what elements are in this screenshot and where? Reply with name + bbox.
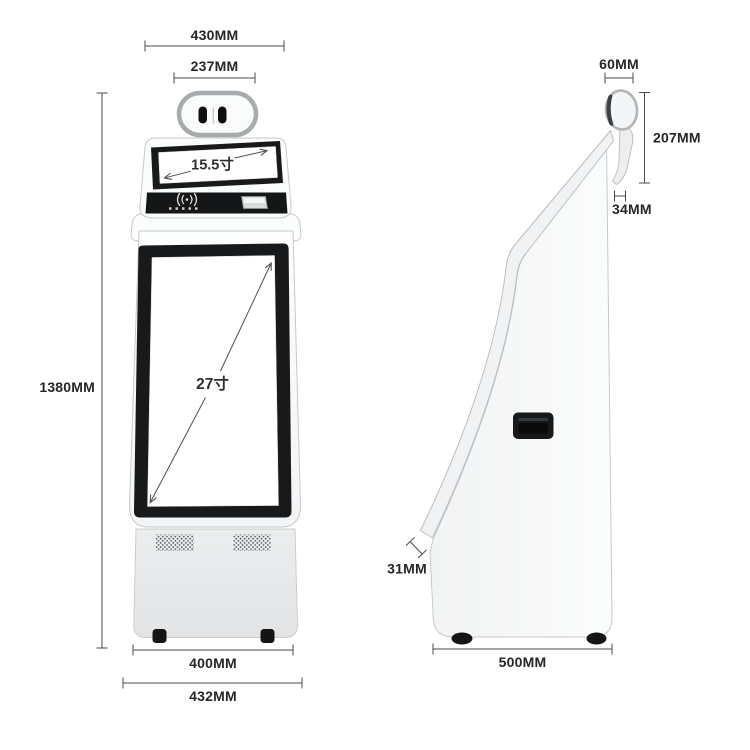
foot-left	[153, 629, 167, 643]
camera-lens-left-icon	[199, 107, 208, 124]
side-view: 60MM 207MM 34MM	[387, 56, 701, 670]
dim-side-bracket: 34MM	[612, 191, 652, 218]
camera-lens-right-icon	[218, 107, 227, 124]
dim-label-207mm: 207MM	[653, 130, 701, 146]
base-cabinet	[134, 529, 298, 643]
side-foot-front	[452, 633, 473, 645]
reader-panel	[146, 193, 288, 214]
main-screen-size-label: 27寸	[196, 374, 229, 393]
dim-front-top-width: 430MM	[145, 27, 284, 52]
camera-head	[179, 93, 256, 135]
dim-side-screen-thickness: 31MM	[387, 538, 427, 577]
dim-front-base-width: 400MM	[133, 645, 293, 672]
dim-label-1380mm: 1380MM	[39, 379, 95, 395]
dim-front-overall-width: 432MM	[123, 678, 302, 705]
dim-label-34mm: 34MM	[612, 201, 652, 217]
kiosk-dimension-diagram: 430MM 237MM 1380MM	[0, 0, 750, 750]
upper-screen-size-label: 15.5寸	[191, 156, 234, 174]
vent-grille-right-icon	[234, 535, 271, 552]
head-bracket	[613, 124, 633, 185]
side-body-shell	[430, 140, 612, 637]
dim-front-height: 1380MM	[39, 93, 107, 648]
dim-label-430mm: 430MM	[191, 27, 239, 43]
dim-side-head-depth: 60MM	[599, 56, 639, 84]
upper-display: 15.5寸	[151, 141, 283, 190]
front-view: 430MM 237MM 1380MM	[39, 27, 302, 704]
dim-side-head-height: 207MM	[639, 93, 701, 184]
vent-grille-left-icon	[156, 535, 194, 552]
dim-label-400mm: 400MM	[189, 655, 237, 671]
head-shell	[179, 93, 256, 135]
card-slot-icon	[242, 197, 268, 209]
side-foot-rear	[587, 633, 607, 645]
dim-side-depth: 500MM	[433, 644, 612, 671]
dim-front-head-width: 237MM	[174, 58, 255, 84]
foot-right	[261, 629, 275, 643]
dim-label-31mm: 31MM	[387, 561, 427, 577]
diagram-canvas: 430MM 237MM 1380MM	[0, 0, 750, 750]
dim-label-237mm: 237MM	[191, 58, 239, 74]
dim-label-432mm: 432MM	[189, 688, 237, 704]
dim-label-500mm: 500MM	[499, 654, 547, 670]
side-printer-slot	[513, 413, 554, 440]
camera-head-side	[604, 89, 638, 131]
main-display: 27寸	[134, 244, 292, 518]
dim-label-60mm: 60MM	[599, 56, 639, 72]
